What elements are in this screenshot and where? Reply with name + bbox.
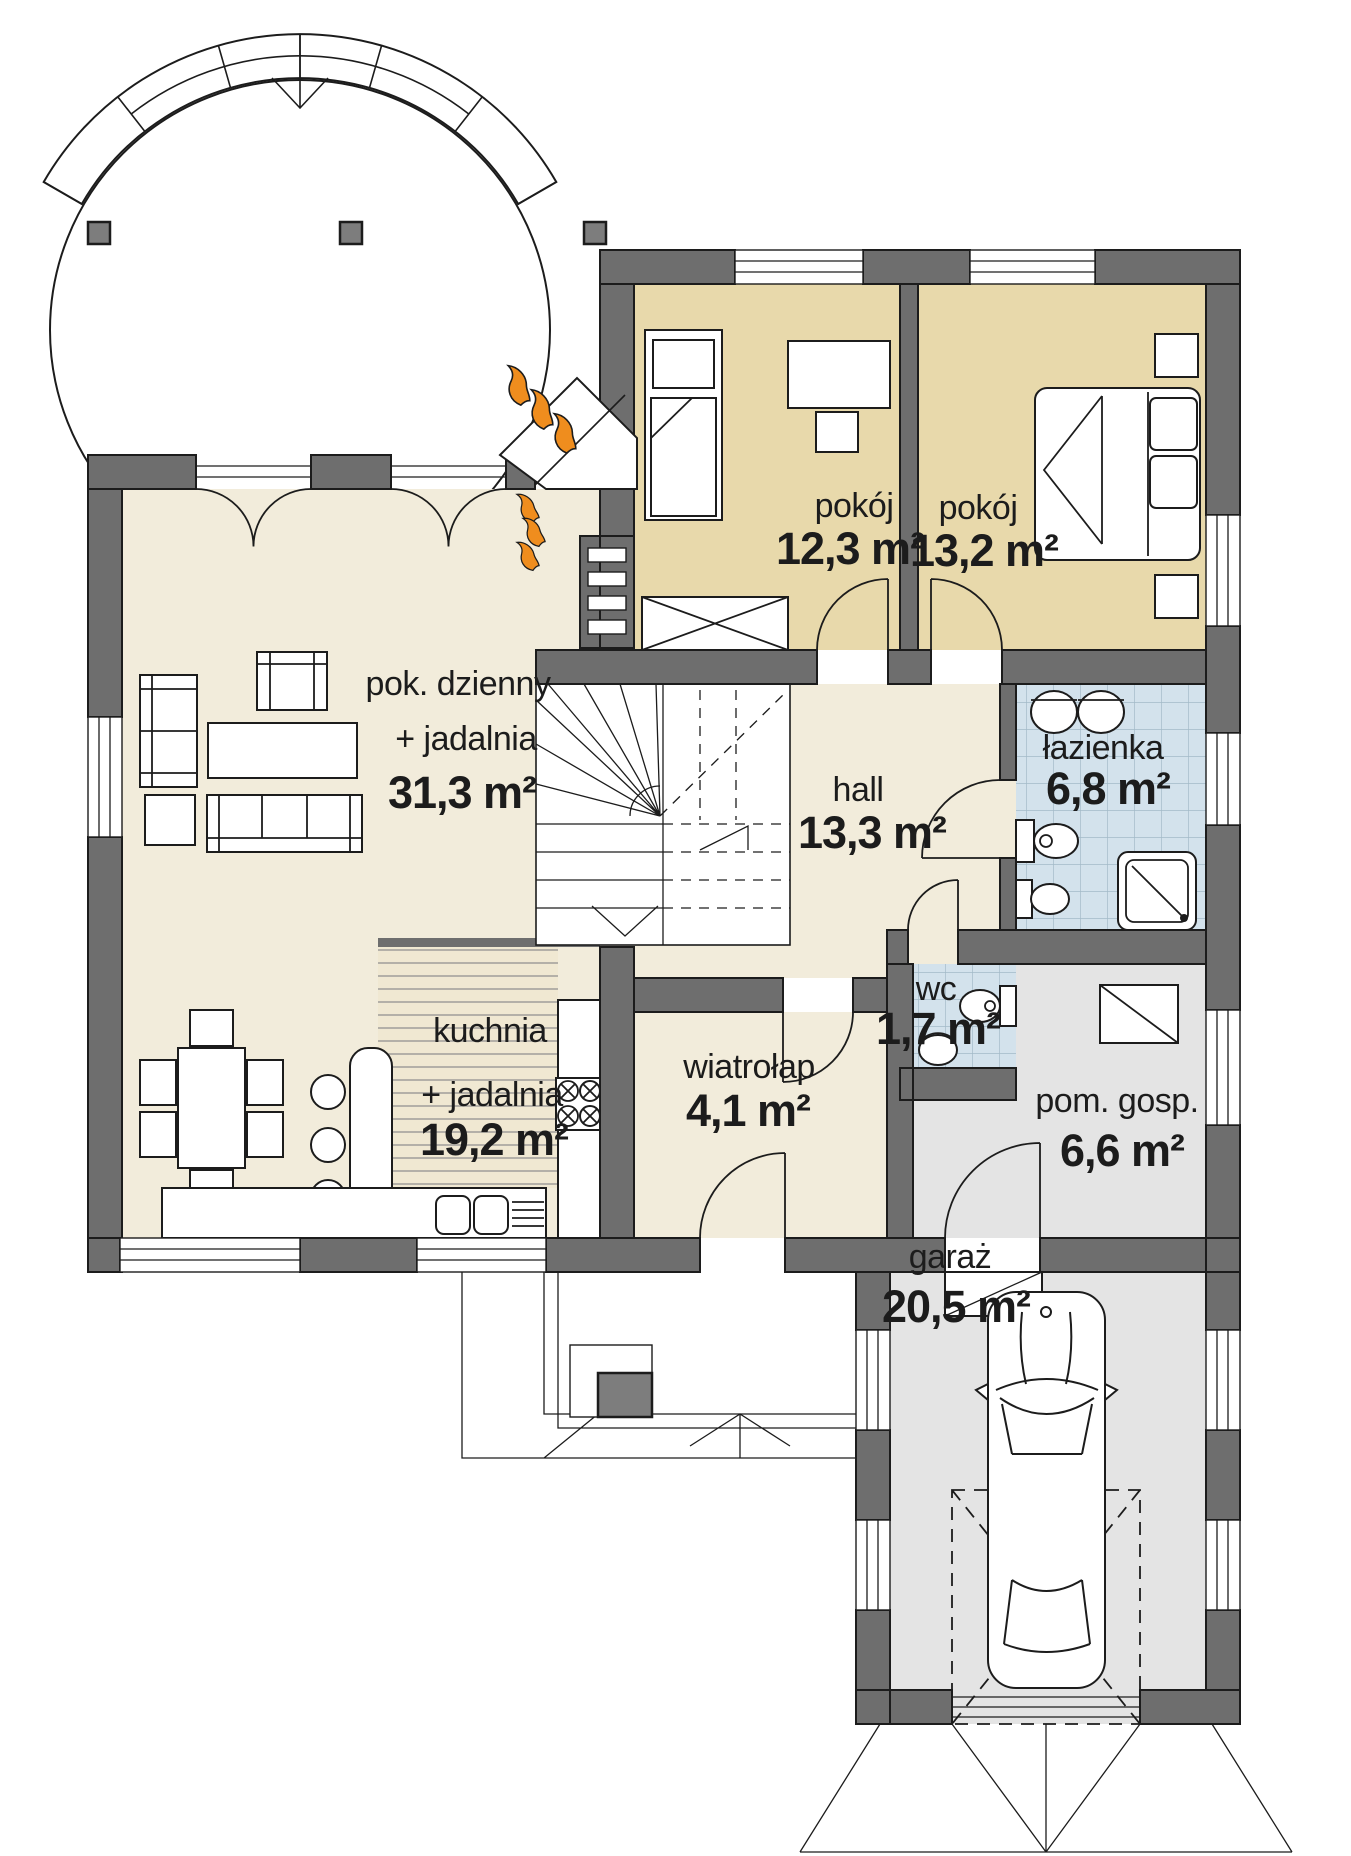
label-room2-area: 13,2 m² (910, 525, 1059, 576)
coffee-table (208, 723, 357, 778)
bidet (1016, 880, 1069, 918)
pillar (88, 222, 110, 244)
window (1206, 1520, 1240, 1610)
nightstand (1155, 334, 1198, 377)
kitchen-sink (436, 1196, 470, 1234)
washbasin (1031, 691, 1077, 733)
label-garage-area: 20,5 m² (882, 1281, 1031, 1332)
window (856, 1330, 890, 1430)
label-hall-name: hall (833, 771, 884, 809)
side-table (145, 795, 195, 845)
armchair (257, 652, 327, 710)
window (88, 717, 122, 837)
toilet (1016, 820, 1078, 862)
dining-table (178, 1048, 245, 1168)
floor-plan-page: pok. dzienny + jadalnia 31,3 m² kuchnia … (0, 0, 1351, 1856)
nightstand (1155, 575, 1198, 618)
bar-stool (311, 1075, 345, 1109)
porch-step-mark (690, 1414, 790, 1458)
label-room2-name: pokój (939, 489, 1018, 527)
driveway (800, 1724, 1292, 1852)
desk (788, 341, 890, 408)
chair (140, 1060, 176, 1105)
kitchen-sink (474, 1196, 508, 1234)
label-kitchen-name2: + jadalnia (421, 1076, 563, 1114)
label-bathroom-name: łazienka (1043, 729, 1164, 767)
label-vestibule-name: wiatrołap (682, 1048, 815, 1086)
label-room1-area: 12,3 m² (776, 523, 925, 574)
desk-chair (816, 412, 858, 452)
window (735, 250, 863, 284)
chair (190, 1010, 233, 1046)
water-heater (1100, 985, 1178, 1043)
washbasin (1078, 691, 1124, 733)
sofa-3-seat (207, 795, 362, 852)
stairs (536, 684, 790, 945)
label-kitchen-name: kuchnia (433, 1012, 547, 1050)
floor-plan-drawing: pok. dzienny + jadalnia 31,3 m² kuchnia … (0, 0, 1351, 1856)
double-bed (1035, 388, 1200, 560)
porch-pillar (598, 1373, 652, 1417)
window (1206, 515, 1240, 626)
label-utility-name: pom. gosp. (1035, 1082, 1198, 1120)
window (856, 1520, 890, 1610)
sofa-2-seat (140, 675, 197, 787)
pillow (653, 340, 714, 388)
utility-floor-2 (913, 1100, 1016, 1238)
pillar (340, 222, 362, 244)
window (970, 250, 1095, 284)
wardrobe (642, 597, 788, 650)
label-bathroom-area: 6,8 m² (1046, 763, 1171, 814)
label-hall-area: 13,3 m² (798, 807, 947, 858)
bar-stool (311, 1128, 345, 1162)
label-kitchen-area: 19,2 m² (420, 1114, 569, 1165)
window (417, 1238, 546, 1272)
window (1206, 733, 1240, 825)
window (120, 1238, 300, 1272)
chair (140, 1112, 176, 1157)
label-room1-name: pokój (815, 487, 894, 525)
car (976, 1292, 1117, 1688)
entry-porch (462, 1272, 856, 1458)
pillar (584, 222, 606, 244)
label-utility-area: 6,6 m² (1060, 1125, 1185, 1176)
chair (247, 1112, 283, 1157)
single-bed (645, 330, 722, 520)
label-vestibule-area: 4,1 m² (686, 1085, 811, 1136)
pillow (1150, 398, 1197, 450)
label-living-area: 31,3 m² (388, 767, 537, 818)
pillow (1150, 456, 1197, 508)
window (1206, 1010, 1240, 1125)
chair (247, 1060, 283, 1105)
label-wc-area: 1,7 m² (876, 1003, 1001, 1054)
shower (1118, 852, 1196, 930)
label-living-name: pok. dzienny (366, 665, 551, 703)
label-living-name2: + jadalnia (395, 720, 537, 758)
window (1206, 1330, 1240, 1430)
label-garage-name: garaż (909, 1238, 992, 1276)
